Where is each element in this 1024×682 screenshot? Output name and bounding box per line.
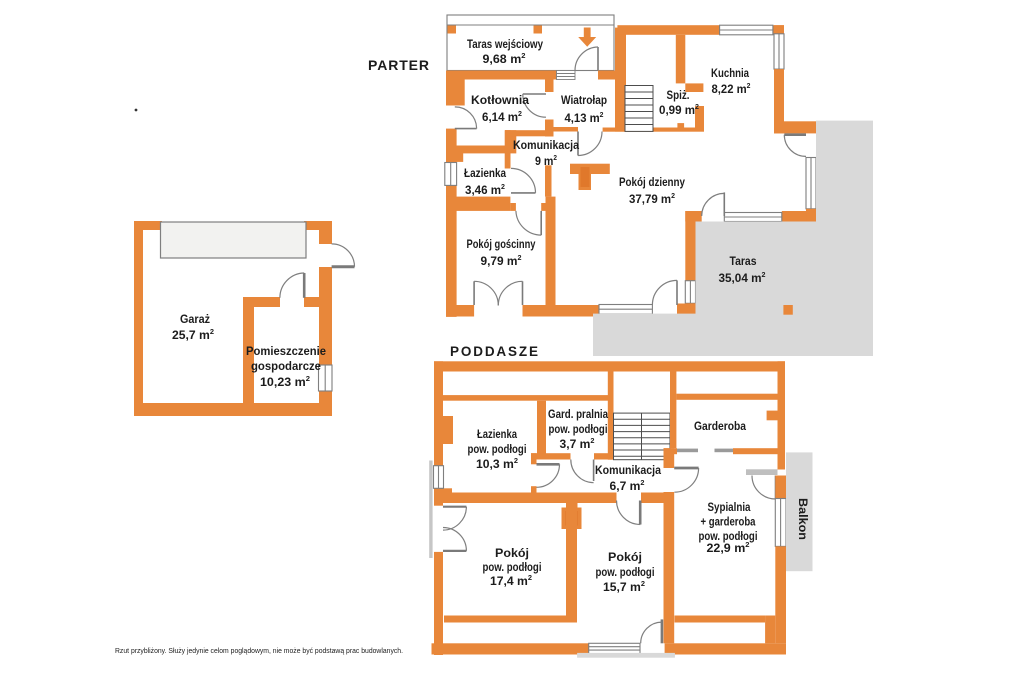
svg-text:Sypialnia: Sypialnia bbox=[708, 502, 752, 514]
svg-text:Taras wejściowy: Taras wejściowy bbox=[467, 39, 544, 51]
svg-text:Pokój dzienny: Pokój dzienny bbox=[619, 177, 686, 189]
svg-text:Kuchnia: Kuchnia bbox=[711, 68, 749, 80]
svg-text:25,7 m2: 25,7 m2 bbox=[172, 329, 214, 342]
svg-text:Kotłownia: Kotłownia bbox=[471, 95, 530, 107]
svg-text:17,4 m2: 17,4 m2 bbox=[490, 575, 532, 588]
svg-text:Rzut przybliżony. Służy jedyni: Rzut przybliżony. Służy jedynie celom po… bbox=[115, 648, 403, 655]
svg-text:Komunikacja: Komunikacja bbox=[595, 465, 662, 477]
svg-text:9,68 m2: 9,68 m2 bbox=[483, 53, 526, 66]
svg-text:22,9 m2: 22,9 m2 bbox=[707, 542, 750, 555]
svg-text:3,46 m2: 3,46 m2 bbox=[465, 184, 505, 197]
svg-text:Balkon: Balkon bbox=[796, 498, 808, 540]
svg-text:Łazienka: Łazienka bbox=[477, 429, 517, 441]
svg-text:10,23 m2: 10,23 m2 bbox=[260, 376, 310, 389]
svg-text:gospodarcze: gospodarcze bbox=[251, 361, 321, 373]
svg-text:0,99 m2: 0,99 m2 bbox=[659, 104, 699, 117]
svg-text:3,7 m2: 3,7 m2 bbox=[560, 438, 595, 451]
svg-text:9,79 m2: 9,79 m2 bbox=[481, 255, 522, 268]
svg-text:Komunikacja: Komunikacja bbox=[513, 140, 580, 152]
svg-text:6,14 m2: 6,14 m2 bbox=[482, 111, 522, 124]
svg-text:pow. podłogi: pow. podłogi bbox=[468, 444, 527, 456]
svg-text:Garaż: Garaż bbox=[180, 314, 210, 326]
svg-text:Garderoba: Garderoba bbox=[694, 421, 747, 433]
svg-text:37,79 m2: 37,79 m2 bbox=[629, 193, 675, 206]
svg-text:Spiż.: Spiż. bbox=[667, 90, 690, 102]
svg-text:Wiatrołap: Wiatrołap bbox=[561, 95, 607, 107]
svg-text:4,13 m2: 4,13 m2 bbox=[565, 112, 604, 125]
svg-text:pow. podłogi: pow. podłogi bbox=[549, 424, 608, 436]
svg-text:Pokój: Pokój bbox=[495, 548, 529, 560]
svg-text:Pomieszczenie: Pomieszczenie bbox=[246, 346, 326, 358]
svg-text:+ garderoba: + garderoba bbox=[701, 517, 756, 529]
svg-text:Gard. pralnia: Gard. pralnia bbox=[548, 409, 609, 421]
svg-text:10,3 m2: 10,3 m2 bbox=[476, 458, 518, 471]
svg-text:PARTER: PARTER bbox=[368, 57, 429, 73]
svg-text:PODDASZE: PODDASZE bbox=[450, 344, 538, 359]
svg-text:8,22 m2: 8,22 m2 bbox=[712, 83, 751, 96]
svg-text:35,04 m2: 35,04 m2 bbox=[719, 272, 766, 285]
svg-text:pow. podłogi: pow. podłogi bbox=[596, 567, 655, 579]
svg-text:Pokój: Pokój bbox=[608, 552, 642, 564]
svg-text:Pokój gościnny: Pokój gościnny bbox=[467, 239, 536, 251]
svg-text:Łazienka: Łazienka bbox=[464, 168, 507, 180]
svg-text:6,7 m2: 6,7 m2 bbox=[610, 480, 645, 493]
svg-text:Taras: Taras bbox=[730, 256, 757, 268]
svg-text:pow. podłogi: pow. podłogi bbox=[483, 562, 542, 574]
svg-text:15,7 m2: 15,7 m2 bbox=[603, 581, 645, 594]
